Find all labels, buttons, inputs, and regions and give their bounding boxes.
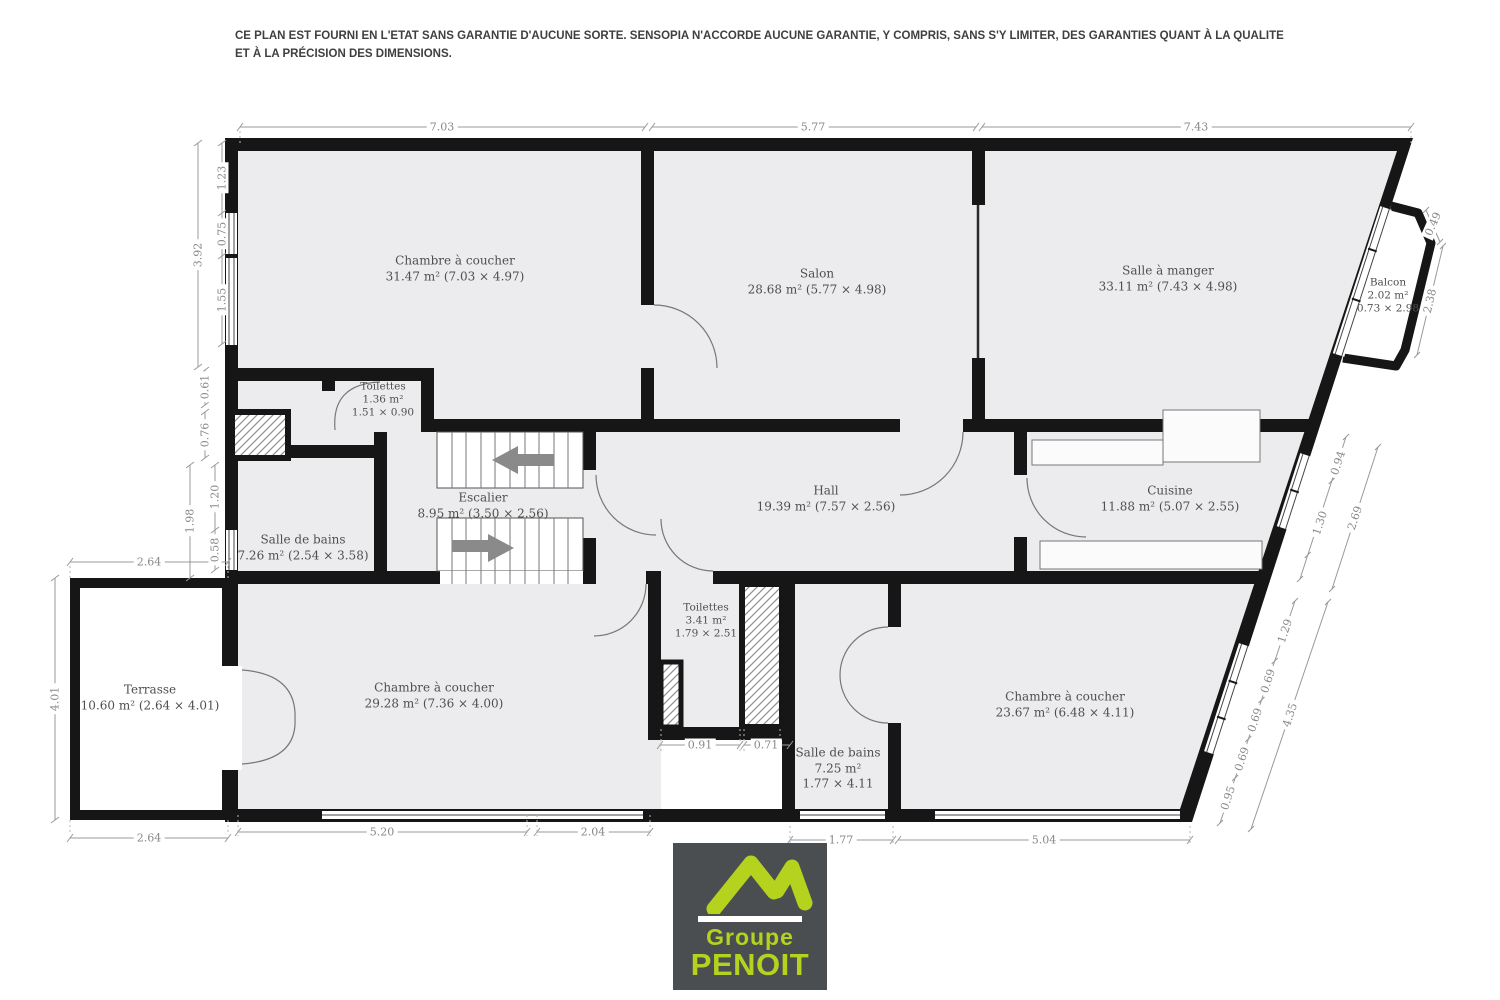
room-label-salle-de-bains-bas: Salle de bains 7.25 m² 1.77 × 4.11: [795, 746, 880, 793]
room-label-cuisine: Cuisine 11.88 m² (5.07 × 2.55): [1101, 483, 1240, 514]
room-label-toilettes-bas: Toilettes 3.41 m² 1.79 × 2.51: [675, 601, 737, 640]
dim-label: 7.43: [1181, 121, 1212, 134]
room-label-terrasse: Terrasse 10.60 m² (2.64 × 4.01): [81, 682, 220, 713]
dim-label: 1.20: [209, 482, 222, 513]
dim-label: 1.77: [826, 834, 857, 847]
dim-label: 0.91: [685, 739, 716, 752]
room-label-chambre-bas-gauche: Chambre à coucher 29.28 m² (7.36 × 4.00): [365, 680, 504, 711]
dim-label: 2.64: [134, 556, 165, 569]
room-label-escalier: Escalier 8.95 m² (3.50 × 2.56): [417, 490, 548, 521]
dim-label: 5.20: [367, 826, 398, 839]
room-label-balcon: Balcon 2.02 m² 0.73 × 2.98: [1357, 276, 1419, 315]
room-label-salle-a-manger: Salle à manger 33.11 m² (7.43 × 4.98): [1099, 263, 1238, 294]
building-shell: [225, 138, 1413, 822]
dim-label: 2.64: [134, 832, 165, 845]
room-label-chambre-haut-gauche: Chambre à coucher 31.47 m² (7.03 × 4.97): [386, 253, 525, 284]
dim-label: 0.61: [199, 372, 212, 403]
room-label-hall: Hall 19.39 m² (7.57 × 2.56): [757, 483, 896, 514]
room-label-toilettes-haut: Toilettes 1.36 m² 1.51 × 0.90: [352, 380, 414, 419]
logo-text-penoit: PENOIT: [691, 949, 809, 980]
floor-plan-page: CE PLAN EST FOURNI EN L'ETAT SANS GARANT…: [0, 0, 1500, 1000]
dim-label: 7.03: [427, 121, 458, 134]
dim-label: 5.77: [798, 121, 829, 134]
room-label-salon: Salon 28.68 m² (5.77 × 4.98): [748, 266, 887, 297]
room-label-salle-de-bains-gauche: Salle de bains 7.26 m² (2.54 × 3.58): [237, 532, 368, 563]
dim-label: 0.58: [209, 535, 222, 566]
logo-text-groupe: Groupe: [706, 925, 794, 949]
dim-label: 2.04: [578, 826, 609, 839]
room-label-chambre-bas-droite: Chambre à coucher 23.67 m² (6.48 × 4.11): [996, 689, 1135, 720]
dim-label: 1.98: [184, 506, 197, 537]
dim-label: 1.55: [216, 285, 229, 316]
dim-label: 0.75: [216, 219, 229, 250]
dim-label: 1.23: [216, 163, 229, 194]
dim-label: 0.76: [199, 420, 212, 451]
logo-divider: [698, 916, 802, 922]
dim-label: 5.04: [1029, 834, 1060, 847]
dim-label: 0.71: [751, 739, 782, 752]
logo-mountain-icon: [673, 843, 827, 914]
groupe-penoit-logo: Groupe PENOIT: [673, 843, 827, 990]
dim-label: 3.92: [192, 240, 205, 271]
dim-label: 4.01: [49, 684, 62, 715]
